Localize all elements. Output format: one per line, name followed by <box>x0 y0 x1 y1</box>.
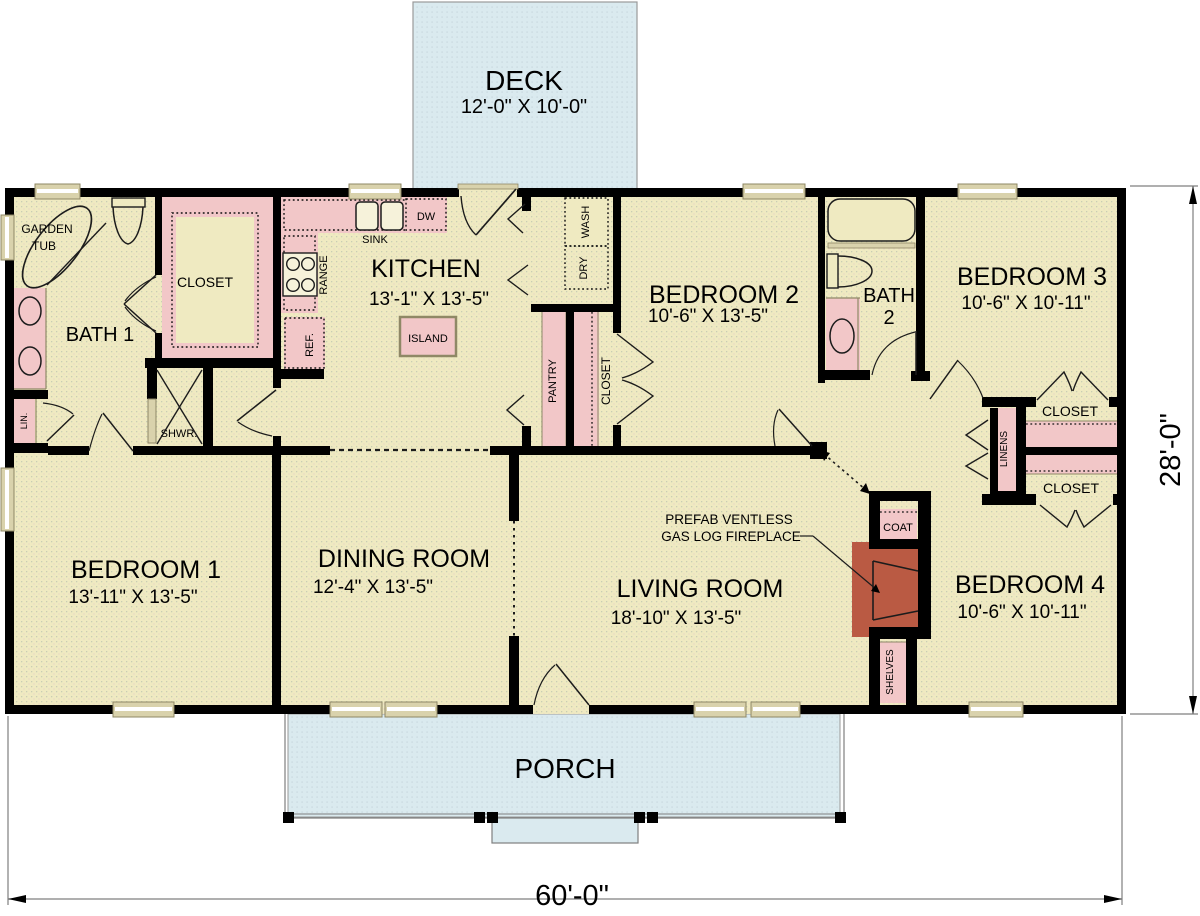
svg-text:BATH: BATH <box>863 285 915 307</box>
svg-text:SINK: SINK <box>362 234 388 246</box>
svg-text:DW: DW <box>417 211 436 223</box>
svg-text:LIN.: LIN. <box>19 413 29 430</box>
svg-text:13'-1" X 13'-5": 13'-1" X 13'-5" <box>369 289 489 310</box>
svg-text:KITCHEN: KITCHEN <box>371 255 481 283</box>
svg-text:10'-6" X 13'-5": 10'-6" X 13'-5" <box>648 306 768 327</box>
svg-text:ISLAND: ISLAND <box>408 333 448 345</box>
svg-text:CLOSET: CLOSET <box>599 356 613 405</box>
svg-text:DINING ROOM: DINING ROOM <box>318 545 490 573</box>
svg-text:BATH 1: BATH 1 <box>66 324 135 346</box>
svg-text:LINENS: LINENS <box>999 431 1010 467</box>
svg-text:BEDROOM 3: BEDROOM 3 <box>957 263 1107 291</box>
svg-text:60'-0": 60'-0" <box>535 880 609 912</box>
svg-text:18'-10" X 13'-5": 18'-10" X 13'-5" <box>611 608 742 629</box>
svg-text:GARDEN: GARDEN <box>21 222 72 236</box>
svg-text:BEDROOM 2: BEDROOM 2 <box>649 281 799 309</box>
svg-text:PORCH: PORCH <box>514 753 615 784</box>
svg-text:TUB: TUB <box>32 239 56 253</box>
svg-text:SHWR.: SHWR. <box>161 428 198 440</box>
svg-text:COAT: COAT <box>883 522 913 534</box>
svg-text:28'-0": 28'-0" <box>1155 413 1187 487</box>
svg-text:10'-6" X 10'-11": 10'-6" X 10'-11" <box>957 602 1086 623</box>
svg-text:DECK: DECK <box>485 65 563 96</box>
svg-text:GAS LOG FIREPLACE: GAS LOG FIREPLACE <box>661 529 801 544</box>
svg-text:BEDROOM 1: BEDROOM 1 <box>71 556 221 584</box>
svg-text:DRY: DRY <box>578 256 590 280</box>
svg-text:10'-6" X 10'-11": 10'-6" X 10'-11" <box>961 293 1090 314</box>
svg-text:12'-4" X 13'-5": 12'-4" X 13'-5" <box>313 577 433 598</box>
svg-text:WASH: WASH <box>580 206 592 239</box>
svg-text:CLOSET: CLOSET <box>1042 403 1098 419</box>
svg-text:REF.: REF. <box>304 333 316 357</box>
svg-text:PREFAB VENTLESS: PREFAB VENTLESS <box>665 512 793 527</box>
svg-text:CLOSET: CLOSET <box>177 274 233 290</box>
svg-text:RANGE: RANGE <box>318 255 330 294</box>
svg-text:CLOSET: CLOSET <box>1043 480 1099 496</box>
svg-text:13'-11" X 13'-5": 13'-11" X 13'-5" <box>68 587 197 608</box>
svg-text:SHELVES: SHELVES <box>885 649 896 695</box>
svg-text:BEDROOM 4: BEDROOM 4 <box>955 571 1105 599</box>
svg-text:LIVING ROOM: LIVING ROOM <box>617 575 784 603</box>
svg-text:2: 2 <box>883 307 894 329</box>
svg-text:12'-0" X 10'-0": 12'-0" X 10'-0" <box>461 96 587 118</box>
svg-text:PANTRY: PANTRY <box>547 359 559 403</box>
